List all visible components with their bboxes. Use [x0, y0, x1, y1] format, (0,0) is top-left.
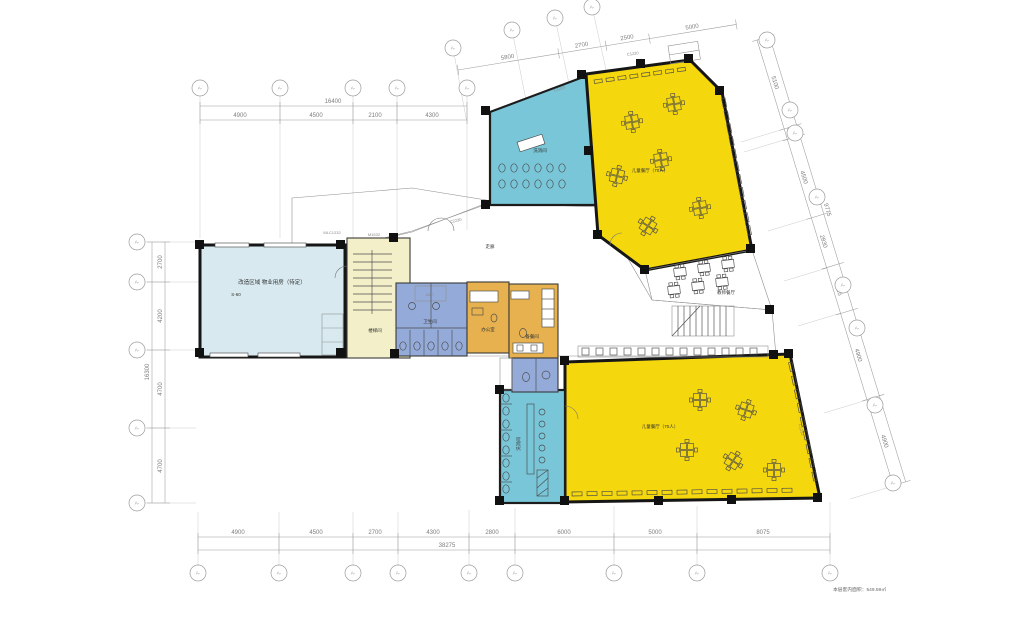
- window: [210, 353, 248, 357]
- dim-seg: 5800: [501, 54, 516, 62]
- dim-chain-top-left: 16400 4900 4500 2100 4300: [200, 96, 467, 238]
- dim-seg: 2800: [485, 530, 499, 536]
- grid-bubble: A-: [445, 40, 461, 56]
- stair-core: [672, 306, 734, 336]
- svg-text:A-: A-: [135, 426, 140, 431]
- dim-chain-bottom: 4900 4500 2700 4300 2800 6000 5000 8075 …: [198, 502, 830, 565]
- wall-tag: M1532: [368, 232, 381, 237]
- dim-chain-left: 16300 2700 4200 4700 4700: [145, 242, 200, 503]
- dim-seg: 4700: [158, 382, 164, 396]
- svg-text:A-: A-: [612, 571, 617, 576]
- svg-text:A-: A-: [351, 571, 356, 576]
- svg-text:A-: A-: [135, 280, 140, 285]
- toilet-label: 卫生间: [423, 318, 437, 325]
- svg-text:A-: A-: [135, 501, 140, 506]
- hall-bottom-label: 儿童餐厅（70人）: [642, 423, 679, 430]
- svg-text:A-: A-: [278, 86, 283, 91]
- pantry-label: 备餐间: [525, 333, 539, 340]
- dim-seg: 5000: [648, 530, 662, 536]
- dim-seg: 4300: [425, 113, 439, 119]
- dim-seg: 5000: [685, 23, 700, 31]
- stairs-central: [672, 306, 726, 336]
- dim-seg: 2500: [620, 34, 635, 42]
- wall-tag: C1220: [627, 50, 640, 57]
- window: [258, 353, 300, 357]
- dim-seg: 4900: [231, 530, 245, 536]
- grid-bubble: A-: [459, 80, 475, 96]
- grid-bubble: A-: [390, 565, 406, 581]
- svg-text:A-: A-: [135, 240, 140, 245]
- corridor-label: 走廊: [486, 243, 495, 250]
- svg-text:A-: A-: [793, 131, 798, 136]
- svg-text:A-: A-: [513, 571, 518, 576]
- grid-bubble: A-: [809, 189, 825, 205]
- svg-text:A-: A-: [196, 571, 201, 576]
- svg-text:A-: A-: [553, 16, 558, 21]
- wash-bottom-label: 洗消间: [515, 437, 522, 451]
- stair-room-label: 楼梯间: [368, 327, 382, 334]
- dining-hall-top: [586, 60, 752, 270]
- dim-seg: 4500: [309, 530, 323, 536]
- grid-bubble: A-: [689, 565, 705, 581]
- dim-seg: 4700: [158, 459, 164, 473]
- svg-text:A-: A-: [198, 86, 203, 91]
- grid-bubble: A-: [606, 565, 622, 581]
- grid-bubble: A-: [345, 80, 361, 96]
- svg-text:A-: A-: [135, 348, 140, 353]
- window: [264, 243, 306, 247]
- grid-bubble: A-: [835, 277, 851, 293]
- dim-seg: 5100: [769, 76, 779, 91]
- dining-hall-bottom: [565, 354, 820, 502]
- grid-bubble: A-: [507, 565, 523, 581]
- grid-bubble: A-: [849, 320, 865, 336]
- bench-squares: [582, 348, 757, 355]
- hall-top-label: 儿童餐厅（70人）: [632, 167, 669, 174]
- dim-seg: 2830: [818, 234, 828, 249]
- area-note: 本层套内面积：549.59㎡: [833, 586, 886, 593]
- wall-tag: C2230: [449, 217, 462, 225]
- dim-seg: 4900: [233, 113, 247, 119]
- dim-total: 16400: [325, 99, 342, 105]
- wall-tag: MLC1232: [323, 230, 341, 235]
- svg-text:A-: A-: [451, 46, 456, 51]
- dim-seg: 4200: [158, 309, 164, 323]
- svg-text:A-: A-: [277, 571, 282, 576]
- grid-bubble: A-: [389, 80, 405, 96]
- grid-bubble: A-: [129, 274, 145, 290]
- grid-bubble: A-: [782, 102, 798, 118]
- dim-seg: 4500: [798, 170, 808, 185]
- svg-text:A-: A-: [467, 571, 472, 576]
- svg-text:A-: A-: [765, 38, 770, 43]
- grid-bubble: A-: [461, 565, 477, 581]
- svg-text:A-: A-: [873, 403, 878, 408]
- grid-bubble: A-: [129, 495, 145, 511]
- grid-bubble: A-: [759, 32, 775, 48]
- small-toilet-room: [512, 358, 558, 392]
- svg-text:A-: A-: [395, 86, 400, 91]
- grid-bubble: A-: [271, 565, 287, 581]
- grid-bubble: A-: [129, 342, 145, 358]
- svg-text:A-: A-: [396, 571, 401, 576]
- svg-text:A-: A-: [841, 283, 846, 288]
- grid-bubble: A-: [192, 80, 208, 96]
- dim-seg: 4300: [426, 530, 440, 536]
- grid-bubble: A-: [885, 475, 901, 491]
- dim-seg: 6000: [557, 530, 571, 536]
- svg-text:A-: A-: [590, 5, 595, 10]
- dim-seg: 2700: [368, 530, 382, 536]
- dim-seg: 4900: [879, 434, 889, 449]
- dim-total: 38275: [439, 543, 456, 549]
- dim-seg: 8075: [756, 530, 770, 536]
- grid-bubble: A-: [129, 234, 145, 250]
- grid-bubble: A-: [787, 125, 803, 141]
- wash-top-label: 洗消间: [533, 147, 547, 154]
- floor-plan-drawing: 16400 4900 4500 2100 4300 5800 2700 2500…: [0, 0, 1024, 617]
- grid-bubble: A-: [129, 420, 145, 436]
- left-hall-room: [200, 245, 345, 357]
- dim-total: 16300: [145, 363, 151, 380]
- svg-text:A-: A-: [788, 108, 793, 113]
- grid-bubble: A-: [822, 565, 838, 581]
- grid-bubble: A-: [584, 0, 600, 15]
- dim-seg: 4500: [309, 113, 323, 119]
- grid-bubble: A-: [190, 565, 206, 581]
- dim-seg: 2100: [368, 113, 382, 119]
- svg-text:A-: A-: [351, 86, 356, 91]
- svg-text:A-: A-: [465, 86, 470, 91]
- dim-total: 9775: [822, 203, 832, 218]
- wash-room-bottom: [500, 390, 565, 503]
- svg-text:A-: A-: [891, 481, 896, 486]
- left-hall-label: 改造区域 物业用房（待定）: [238, 278, 306, 286]
- dim-seg: 2700: [158, 255, 164, 269]
- svg-text:A-: A-: [855, 326, 860, 331]
- teacher-dining-label: 教师餐厅: [717, 289, 735, 296]
- svg-text:A-: A-: [828, 571, 833, 576]
- floor-plan-page: 16400 4900 4500 2100 4300 5800 2700 2500…: [0, 0, 1024, 617]
- grid-bubble: A-: [345, 565, 361, 581]
- dim-seg: 4900: [853, 348, 863, 363]
- grid-bubble: A-: [867, 397, 883, 413]
- grid-bubble: A-: [547, 10, 563, 26]
- grid-bubble: A-: [272, 80, 288, 96]
- svg-text:A-: A-: [695, 571, 700, 576]
- window: [215, 243, 249, 247]
- svg-text:A-: A-: [815, 195, 820, 200]
- shaft-tag: A5.7: [426, 292, 435, 297]
- grid-bubble: A-: [504, 22, 520, 38]
- left-hall-sublabel: S-60: [231, 292, 241, 297]
- svg-text:A-: A-: [510, 28, 515, 33]
- office-label: 办公室: [481, 326, 495, 333]
- dim-seg: 2700: [575, 42, 590, 50]
